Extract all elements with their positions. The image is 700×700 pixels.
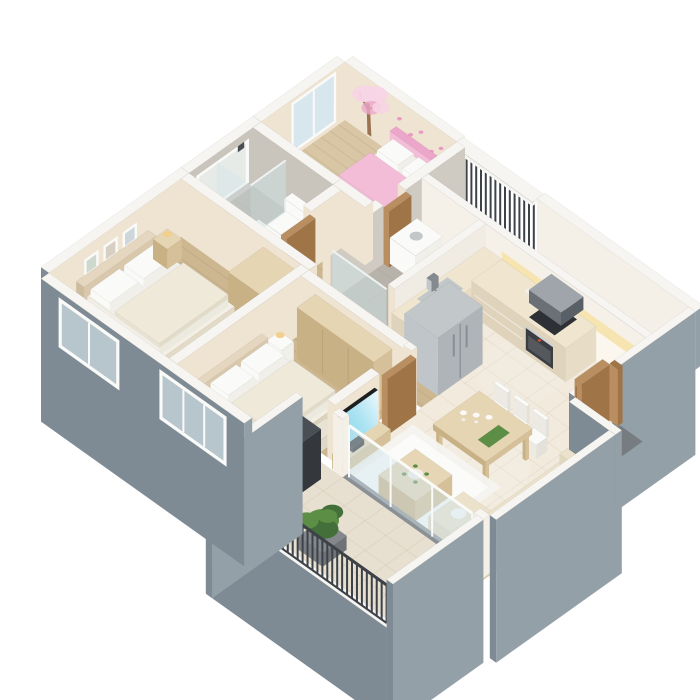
balcony-plant-5 [318,509,338,523]
dining-plate-3 [486,415,493,420]
coffee-cup-1 [413,464,418,467]
coffee-cup-2 [424,472,429,475]
bed2-lamp [276,332,285,338]
floorplan-stage [0,0,700,700]
dining-plate-2 [473,413,480,418]
butterfly-decals-5 [439,147,444,150]
dining-plate-1 [460,410,467,415]
entry-door-frame-a [610,360,623,426]
oven-indicator [538,339,542,341]
butterfly-decals-1 [397,117,402,120]
tree-canopy-4 [372,102,390,114]
apartment-isometric-floorplan [0,0,700,700]
butterfly-decals-3 [419,130,424,133]
dining-cup-2 [474,420,478,423]
living-s-wall-a [333,408,349,477]
dining-cup-1 [461,418,465,421]
master-lamp-a [163,231,172,237]
bath2-basin [410,232,423,241]
